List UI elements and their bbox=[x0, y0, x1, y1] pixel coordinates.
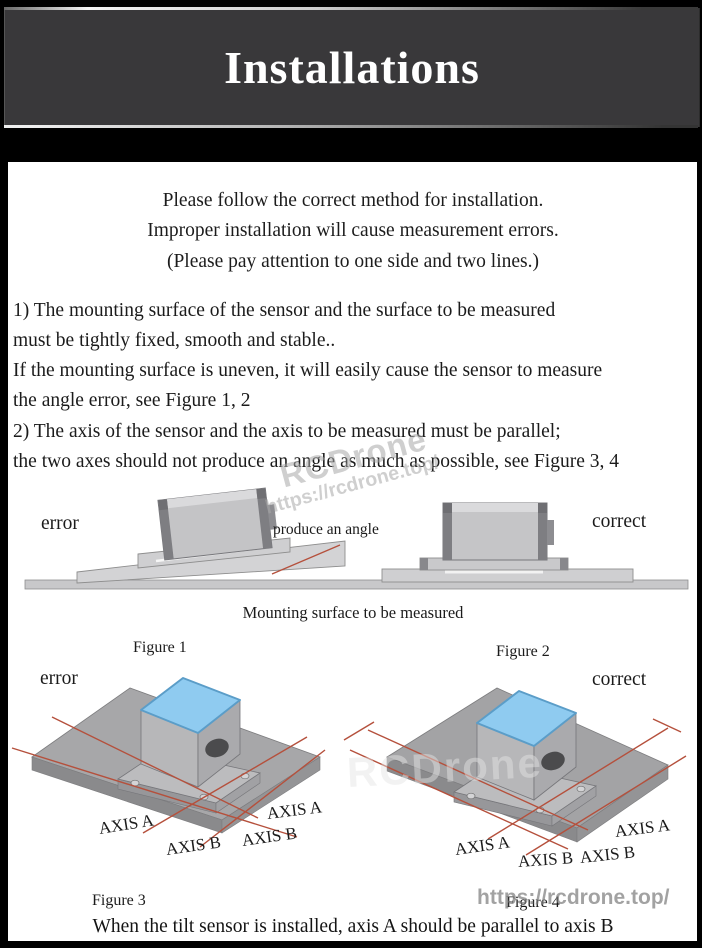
footer-note: When the tilt sensor is installed, axis … bbox=[8, 916, 698, 938]
sensor-side-view-flat bbox=[443, 503, 554, 560]
intro-text: Please follow the correct method for ins… bbox=[8, 186, 698, 277]
header-bottom-highlight bbox=[4, 125, 698, 128]
sensor-side-view-tilted bbox=[158, 487, 279, 560]
intro-line-2: Improper installation will cause measure… bbox=[8, 216, 698, 246]
figure3-error-label: error bbox=[40, 668, 78, 690]
watermark-brand-outline: RCDrone bbox=[346, 739, 544, 797]
figure1-caption: Figure 1 bbox=[133, 639, 187, 657]
instruction-line-3: If the mounting surface is uneven, it wi… bbox=[13, 360, 602, 382]
intro-line-1: Please follow the correct method for ins… bbox=[8, 186, 698, 216]
instruction-line-5: 2) The axis of the sensor and the axis t… bbox=[13, 421, 561, 443]
figure3-caption: Figure 3 bbox=[92, 892, 146, 910]
page-title: Installations bbox=[224, 41, 480, 94]
figure4-correct-label: correct bbox=[592, 669, 646, 691]
right-page-border bbox=[697, 162, 702, 941]
page: Installations Please follow the correct … bbox=[0, 0, 702, 948]
instruction-line-1: 1) The mounting surface of the sensor an… bbox=[13, 300, 555, 322]
watermark-url-bottom: https://rcdrone.top/ bbox=[477, 886, 670, 910]
figure1-error-label: error bbox=[41, 513, 79, 535]
instruction-line-2: must be tightly fixed, smooth and stable… bbox=[13, 330, 335, 352]
figure2-correct-label: correct bbox=[592, 511, 646, 533]
produce-angle-annotation: produce an angle bbox=[273, 521, 379, 539]
instruction-line-4: the angle error, see Figure 1, 2 bbox=[13, 390, 250, 412]
header-panel: Installations bbox=[4, 8, 700, 127]
surface-caption: Mounting surface to be measured bbox=[8, 603, 698, 623]
figure2-caption: Figure 2 bbox=[496, 643, 550, 661]
axis-b-label: AXIS B bbox=[517, 848, 574, 872]
header-top-highlight bbox=[4, 7, 698, 10]
intro-line-3: (Please pay attention to one side and tw… bbox=[8, 247, 698, 277]
